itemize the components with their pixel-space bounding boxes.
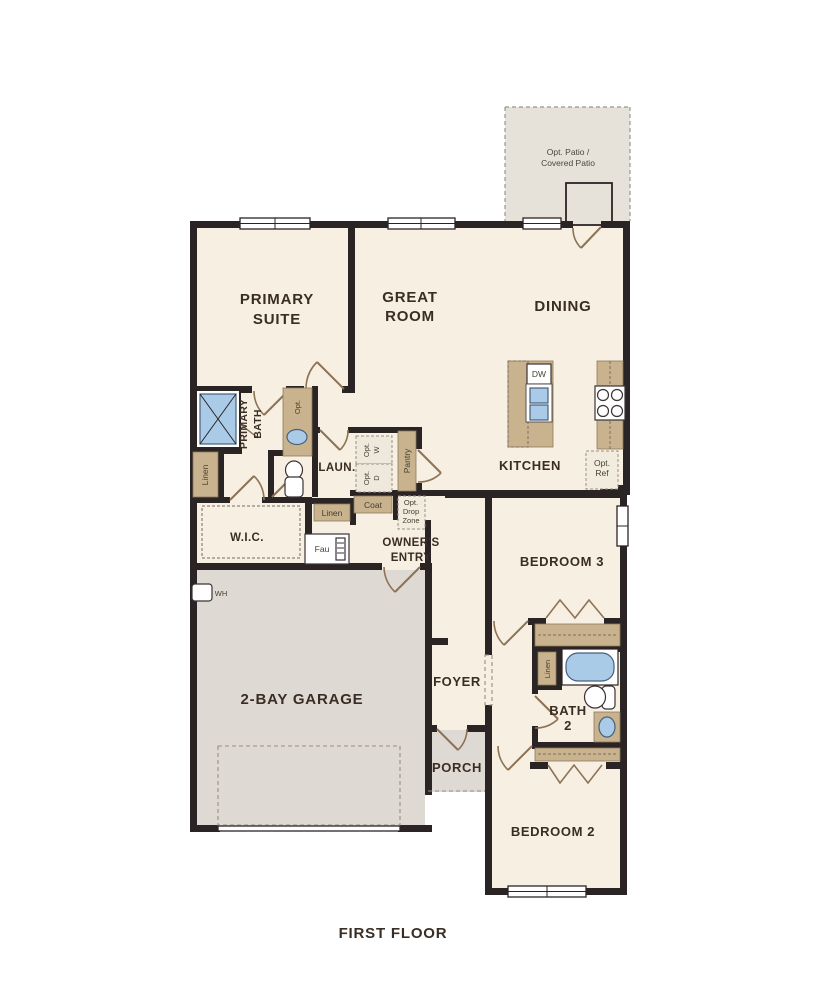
opt-ref-label-2: Ref [595, 468, 609, 478]
kitchen-sink-bowl2 [530, 405, 548, 420]
primary-suite-label-2: SUITE [253, 311, 301, 328]
water-heater-box [192, 584, 212, 601]
dishwasher-label: DW [532, 369, 546, 379]
opt-washer-label-1: Opt. [362, 443, 371, 457]
garage-door [218, 826, 400, 831]
primary-suite-window [240, 218, 310, 229]
primary-bath-toilet [285, 461, 303, 497]
bedroom2-window [508, 886, 586, 897]
linen-hall-label: Linen [322, 508, 343, 518]
kitchen-island [508, 361, 553, 447]
linen-bath2-label: Linen [543, 660, 552, 678]
coat-label: Coat [364, 500, 383, 510]
bath2-label-1: BATH [549, 703, 587, 718]
kitchen-sink-bowl1 [530, 388, 548, 403]
bedroom3-label: BEDROOM 3 [520, 554, 604, 569]
primary-bath-label-2: BATH [252, 409, 264, 439]
dining-window [523, 218, 561, 229]
great-room-label-1: GREAT [382, 289, 437, 306]
opt-washer-label-2: W [372, 446, 381, 454]
foyer-floor [432, 495, 492, 730]
wic-label: W.I.C. [230, 532, 264, 544]
primary-bath-vanity [283, 388, 312, 456]
laundry-label: LAUN. [318, 462, 355, 474]
first-floor-title: FIRST FLOOR [339, 925, 448, 942]
drop-zone-label-2: Drop [403, 507, 419, 516]
primary-bath-label-1: PRIMARY [238, 399, 250, 449]
great-room-label-2: ROOM [385, 308, 435, 325]
bath2-toilet [585, 686, 616, 709]
garage-label: 2-BAY GARAGE [241, 691, 364, 708]
patio-label-2: Covered Patio [541, 158, 595, 168]
primary-suite-label-1: PRIMARY [240, 291, 314, 308]
bath2-tub [562, 649, 618, 685]
owners-entry-label-1: OWNER'S [382, 537, 439, 549]
bedroom2-closet-shelf [535, 748, 620, 761]
linen-primary-label: Linen [200, 464, 210, 485]
patio-label-1: Opt. Patio / [547, 147, 590, 157]
dining-label: DINING [534, 298, 591, 315]
opt-ref-label-1: Opt. [594, 458, 610, 468]
water-heater-label: WH [215, 589, 228, 598]
porch-label: PORCH [432, 760, 482, 775]
bath2-label-2: 2 [564, 718, 572, 733]
bedroom2-label: BEDROOM 2 [511, 824, 595, 839]
foyer-label: FOYER [433, 674, 481, 689]
owners-entry-label-2: ENTRY [391, 552, 432, 564]
great-room-window [388, 218, 455, 229]
floor-plan: Opt. Patio / Covered Patio PRIMARY SUITE… [0, 0, 826, 1000]
opt-dryer-label-1: Opt. [362, 471, 371, 485]
opt-vanity-label: Opt. [293, 400, 302, 414]
bedroom3-closet-shelf [535, 624, 620, 646]
bedroom3-window [617, 506, 628, 546]
drop-zone-label-1: Opt. [404, 498, 418, 507]
floor-plan-drawing: Opt. Patio / Covered Patio PRIMARY SUITE… [0, 0, 826, 1000]
kitchen-counter [595, 361, 625, 449]
furnace-label: Fau [315, 544, 330, 554]
bath2-vanity [594, 712, 620, 742]
drop-zone-label-3: Zone [402, 516, 419, 525]
kitchen-label: KITCHEN [499, 458, 561, 473]
pantry-label: Pantry [402, 448, 412, 473]
opt-dryer-label-2: D [372, 475, 381, 481]
